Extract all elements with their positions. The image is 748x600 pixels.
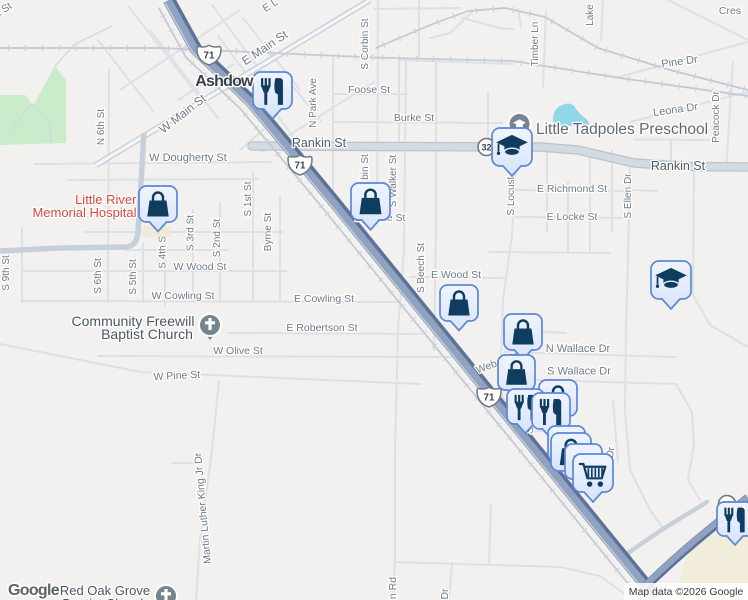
svg-text:E Locke St: E Locke St <box>547 211 598 223</box>
svg-text:S 4th St: S 4th St <box>158 233 169 269</box>
svg-text:Cres: Cres <box>719 5 741 17</box>
svg-text:Baptist Church: Baptist Church <box>101 326 193 342</box>
svg-text:Burke St: Burke St <box>394 112 434 124</box>
svg-text:E Robertson St: E Robertson St <box>286 322 357 334</box>
svg-text:S Ellen Dr: S Ellen Dr <box>623 173 634 219</box>
svg-text:Baptist Church: Baptist Church <box>62 596 147 600</box>
svg-text:W Cowling St: W Cowling St <box>151 290 214 302</box>
svg-text:71: 71 <box>295 160 306 171</box>
svg-text:Byrne St: Byrne St <box>263 213 274 252</box>
svg-text:n Rd: n Rd <box>387 577 399 599</box>
svg-text:W Wood St: W Wood St <box>174 261 227 273</box>
svg-text:N Wallace Dr: N Wallace Dr <box>546 343 611 355</box>
svg-text:71: 71 <box>484 392 495 403</box>
svg-text:E Cowling St: E Cowling St <box>294 293 354 305</box>
svg-text:32: 32 <box>481 142 491 152</box>
svg-text:S 9th St: S 9th St <box>1 255 12 291</box>
svg-text:Peacock Dr: Peacock Dr <box>711 90 722 142</box>
svg-text:Little Tadpoles Preschool: Little Tadpoles Preschool <box>536 121 708 138</box>
svg-text:Dr: Dr <box>439 588 451 600</box>
svg-text:S 3rd St: S 3rd St <box>186 215 197 251</box>
svg-text:71: 71 <box>204 50 215 61</box>
svg-text:Lake: Lake <box>585 4 596 26</box>
svg-text:Rankin St: Rankin St <box>292 136 347 150</box>
svg-text:E Wood St: E Wood St <box>431 269 481 281</box>
svg-text:S Beech St: S Beech St <box>416 243 427 293</box>
svg-text:Map data ©2026 Google: Map data ©2026 Google <box>629 586 744 598</box>
svg-text:Rankin St: Rankin St <box>651 159 706 173</box>
svg-text:S 2nd St: S 2nd St <box>212 219 223 258</box>
svg-text:Foose St: Foose St <box>348 84 390 96</box>
svg-text:W Pine St: W Pine St <box>153 369 200 383</box>
svg-text:S 6th St: S 6th St <box>93 258 104 294</box>
svg-text:E Richmond St: E Richmond St <box>537 183 607 195</box>
svg-text:Google: Google <box>8 582 60 599</box>
svg-text:S 5th St: S 5th St <box>128 259 139 295</box>
svg-text:Timber Ln: Timber Ln <box>530 22 541 67</box>
svg-text:S Corbin St: S Corbin St <box>360 18 371 69</box>
svg-text:W Dougherty St: W Dougherty St <box>149 152 227 164</box>
svg-text:W Olive St: W Olive St <box>213 345 263 357</box>
svg-text:Ashdow: Ashdow <box>195 73 254 90</box>
svg-text:N 6th St: N 6th St <box>96 109 107 145</box>
svg-text:N Park Ave: N Park Ave <box>308 78 319 128</box>
svg-text:bin St: bin St <box>360 154 371 180</box>
svg-text:S 1st St: S 1st St <box>243 181 254 216</box>
svg-text:Memorial Hospital: Memorial Hospital <box>32 205 136 220</box>
svg-text:S Wallace Dr: S Wallace Dr <box>547 366 611 378</box>
